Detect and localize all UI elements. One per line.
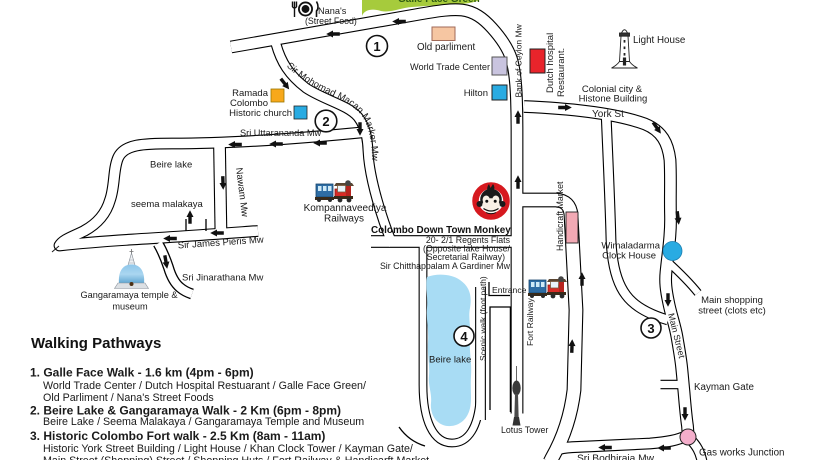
- svg-text:Handicraft Market: Handicraft Market: [555, 181, 565, 251]
- svg-text:museum: museum: [112, 302, 148, 312]
- svg-text:Railways: Railways: [324, 214, 364, 225]
- svg-text:Entrance: Entrance: [492, 285, 527, 295]
- svg-text:Old parliment: Old parliment: [417, 42, 476, 53]
- svg-text:Walking Pathways: Walking Pathways: [31, 335, 161, 352]
- svg-text:Beire lake: Beire lake: [429, 355, 471, 366]
- svg-text:street (clots etc): street (clots etc): [698, 306, 766, 317]
- svg-text:Bank of Ceylon Mw: Bank of Ceylon Mw: [514, 23, 524, 97]
- svg-text:York St: York St: [592, 109, 624, 120]
- svg-text:Hilton: Hilton: [464, 88, 488, 99]
- svg-text:Scenic walk (foot path): Scenic walk (foot path): [478, 276, 488, 361]
- svg-text:3. Historic Colombo Fort walk: 3. Historic Colombo Fort walk - 2.5 Km (…: [30, 429, 325, 443]
- svg-text:Old Parliment / Nana's Street: Old Parliment / Nana's Street Foods: [43, 392, 214, 404]
- svg-text:1. Galle Face Walk - 1.6 km (4: 1. Galle Face Walk - 1.6 km (4pm - 6pm): [30, 366, 254, 380]
- svg-text:Beire Lake / Seema Malakaya /: Beire Lake / Seema Malakaya / Gangaramay…: [43, 416, 364, 428]
- svg-text:Main Street (Shopping) Street: Main Street (Shopping) Street / Shopping…: [43, 455, 429, 460]
- svg-text:(Street Food): (Street Food): [305, 16, 357, 26]
- svg-text:seema malakaya: seema malakaya: [131, 199, 204, 210]
- svg-text:World Trade Center / Dutch Hos: World Trade Center / Dutch Hospital Rest…: [43, 380, 366, 392]
- svg-text:Fort Railway: Fort Railway: [525, 298, 535, 346]
- svg-text:Main shopping: Main shopping: [701, 295, 763, 306]
- svg-text:Historic church: Historic church: [229, 108, 292, 119]
- svg-text:Nana's: Nana's: [318, 6, 347, 16]
- svg-text:Histone Building: Histone Building: [579, 94, 648, 105]
- svg-text:Clock House: Clock House: [602, 251, 656, 262]
- svg-text:Lotus Tower: Lotus Tower: [501, 425, 548, 435]
- svg-text:2: 2: [322, 114, 329, 129]
- svg-text:Dutch hospital: Dutch hospital: [545, 33, 556, 93]
- svg-text:3: 3: [647, 321, 654, 336]
- svg-text:Sri Bodhiraja Mw: Sri Bodhiraja Mw: [577, 454, 655, 461]
- svg-text:Kompannaveediya: Kompannaveediya: [304, 203, 387, 214]
- svg-text:World Trade Center: World Trade Center: [410, 62, 490, 72]
- svg-text:Historic York Street Building: Historic York Street Building / Light Ho…: [43, 443, 413, 455]
- svg-text:Gangaramaya temple &: Gangaramaya temple &: [80, 290, 177, 300]
- svg-text:1: 1: [373, 39, 380, 54]
- svg-text:Kayman Gate: Kayman Gate: [694, 382, 754, 393]
- svg-text:Beire lake: Beire lake: [150, 160, 192, 171]
- svg-text:Restaurant.: Restaurant.: [556, 48, 567, 97]
- svg-text:4: 4: [460, 329, 468, 344]
- svg-text:Sri Jinarathana Mw: Sri Jinarathana Mw: [182, 273, 263, 284]
- svg-text:Gas works Junction: Gas works Junction: [699, 448, 784, 459]
- svg-text:Sri Uttarananda Mw: Sri Uttarananda Mw: [240, 128, 322, 138]
- svg-text:Sir Chitthappalam A Gardiner M: Sir Chitthappalam A Gardiner Mw: [380, 261, 511, 271]
- svg-text:Galle Face Green: Galle Face Green: [398, 0, 480, 5]
- svg-text:Light House: Light House: [633, 35, 686, 46]
